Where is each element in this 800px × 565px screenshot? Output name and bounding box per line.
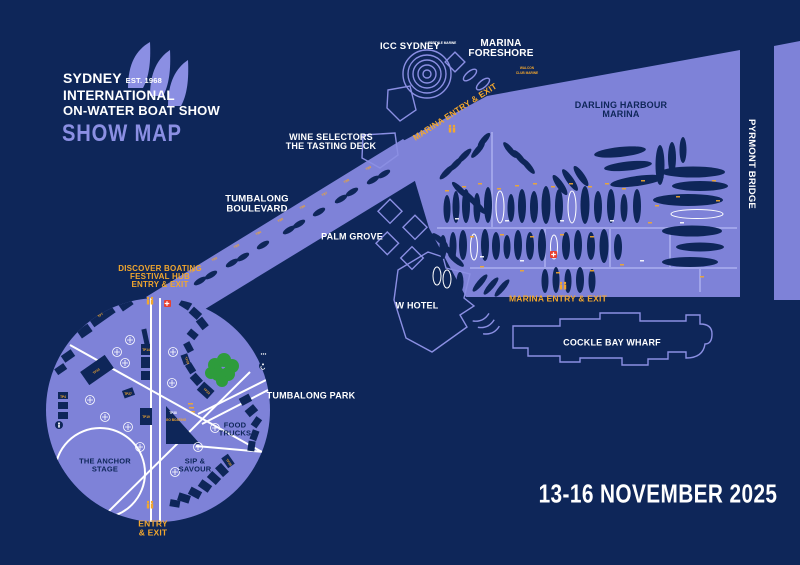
pyrmont-far-shore bbox=[774, 41, 800, 300]
logo-name: SYDNEY EST. 1968 bbox=[63, 71, 162, 85]
svg-text:TP27: TP27 bbox=[124, 392, 132, 396]
icc-spiral-icon bbox=[403, 50, 451, 98]
label-tumbalong-park: TUMBALONG PARK bbox=[267, 391, 356, 400]
svg-text:TP38: TP38 bbox=[169, 411, 177, 415]
accessibility-icon bbox=[259, 362, 267, 370]
label-pyrmont-bridge: PYRMONT BRIDGE bbox=[746, 119, 756, 209]
logo-line2: INTERNATIONAL bbox=[63, 89, 175, 103]
stage-info-icon bbox=[55, 421, 63, 429]
gate-south-entry: ENTRY& EXIT bbox=[138, 519, 168, 536]
info-icon bbox=[259, 350, 267, 358]
boat-show-map: TB1 TB2 TB3 TB4 TB5 TB6 TB7 TB8 TB9 bbox=[0, 0, 800, 565]
show-map-title: SHOW MAP bbox=[62, 122, 182, 146]
label-palm-grove: PALM GROVE bbox=[321, 232, 383, 241]
event-dates: 13-16 NOVEMBER 2025 bbox=[539, 481, 778, 508]
gate-discover-boating: DISCOVER BOATINGFESTIVAL HUBENTRY & EXIT bbox=[118, 265, 202, 289]
label-tasting-deck: WINE SELECTORSTHE TASTING DECK bbox=[286, 133, 377, 151]
svg-text:TP4: TP4 bbox=[60, 395, 66, 399]
svg-text:TP19: TP19 bbox=[142, 415, 150, 419]
waves-icon bbox=[473, 312, 501, 339]
label-w-hotel: W HOTEL bbox=[396, 301, 439, 310]
logo-line3: ON-WATER BOAT SHOW bbox=[63, 104, 220, 117]
gate-marina-entry-bottom: MARINA ENTRY & EXIT bbox=[509, 295, 607, 304]
logo-est: EST. 1968 bbox=[126, 76, 162, 85]
anchor-stage-area bbox=[55, 428, 145, 518]
svg-text:TP14: TP14 bbox=[142, 348, 150, 352]
label-sip-savour: SIP &SAVOUR bbox=[179, 457, 212, 472]
label-marina-foreshore: MARINAFORESHORE bbox=[468, 39, 533, 59]
label-anchor-stage: THE ANCHORSTAGE bbox=[79, 457, 131, 472]
label-food-trucks: FOODTRUCKS bbox=[219, 421, 251, 436]
palm-grove-sites bbox=[376, 199, 427, 269]
svg-text:CLUB MARINE: CLUB MARINE bbox=[516, 71, 538, 75]
svg-text:WALCON: WALCON bbox=[520, 66, 535, 70]
icc-forecourt-outline bbox=[387, 86, 416, 121]
label-icc-sydney: ICC SYDNEY bbox=[380, 42, 440, 52]
label-cockle-bay-wharf: COCKLE BAY WHARF bbox=[563, 338, 661, 347]
svg-text:GO BOATING: GO BOATING bbox=[166, 418, 187, 422]
label-tumbalong-boulevard: TUMBALONGBOULEVARD bbox=[225, 194, 289, 213]
label-darling-harbour-marina: DARLING HARBOURMARINA bbox=[575, 101, 668, 119]
